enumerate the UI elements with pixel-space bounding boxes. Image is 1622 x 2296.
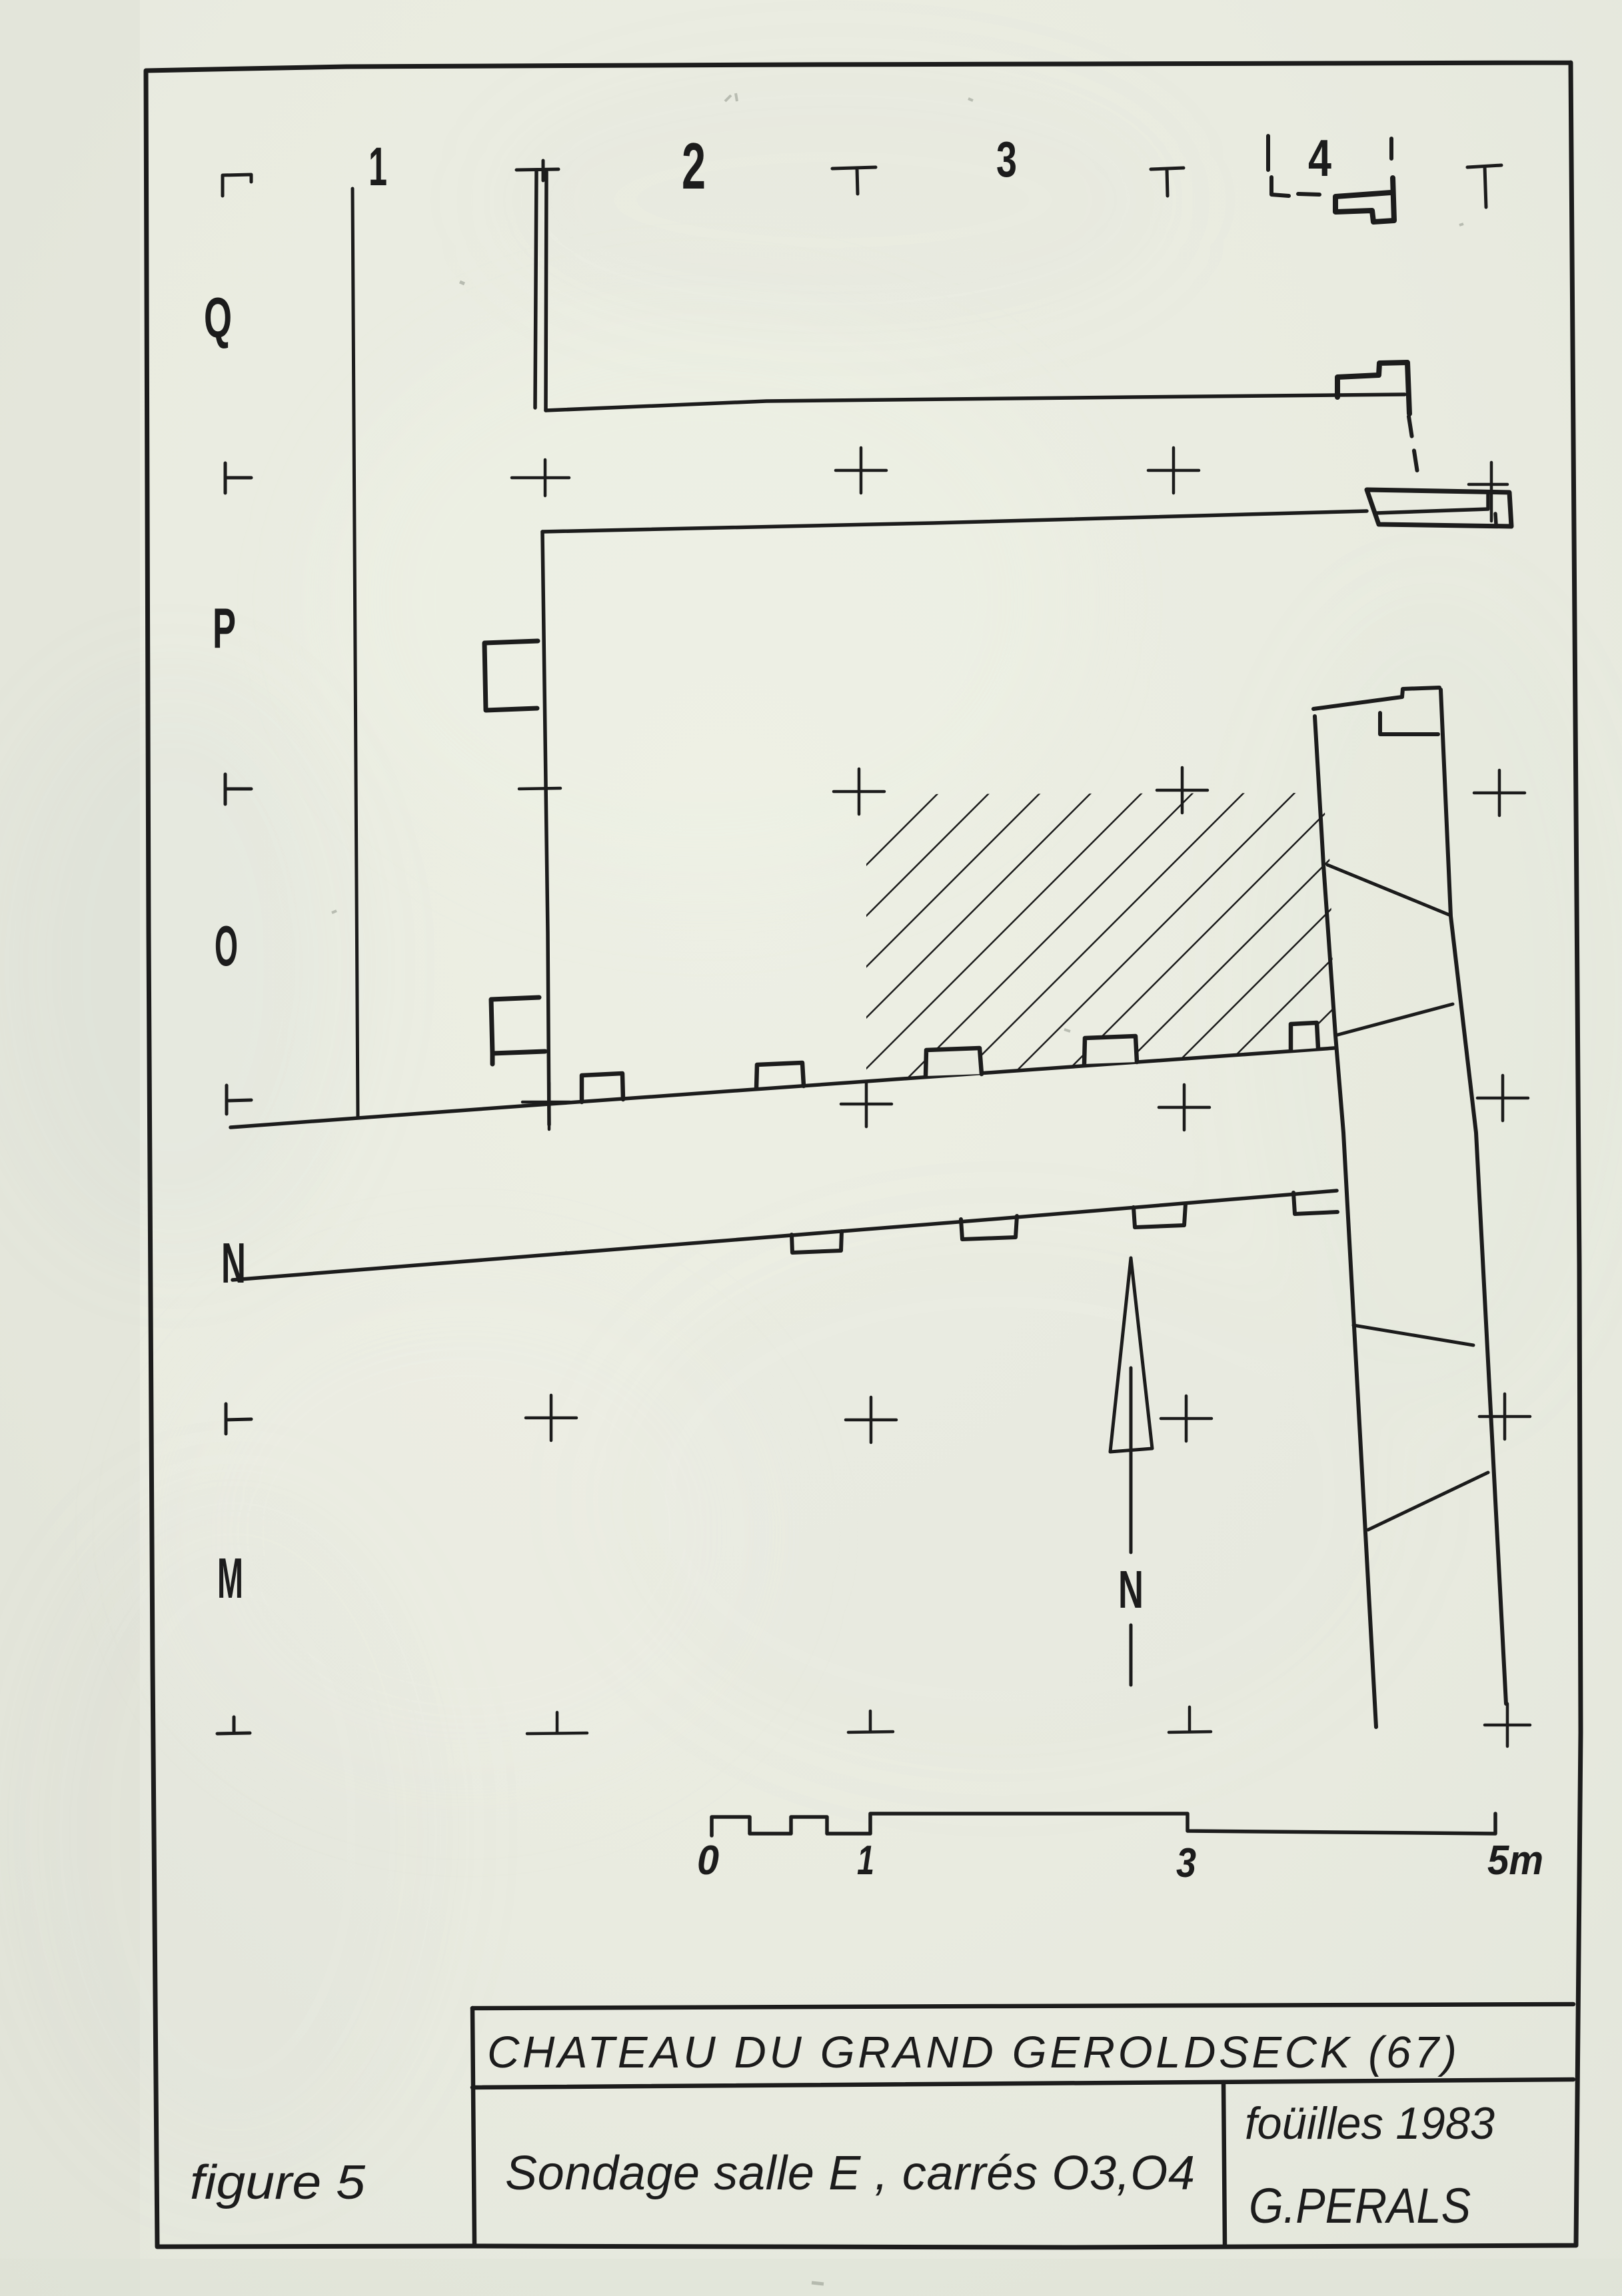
svg-text:Q: Q (204, 287, 232, 350)
svg-text:1: 1 (857, 1838, 874, 1884)
svg-text:foüilles 1983: foüilles 1983 (1245, 2098, 1495, 2149)
svg-text:CHATEAU DU GRAND GEROLDSECK: CHATEAU DU GRAND GEROLDSECK (67) (487, 2027, 1457, 2077)
svg-text:N: N (221, 1232, 246, 1295)
svg-text:2: 2 (682, 129, 706, 203)
svg-text:0: 0 (697, 1838, 719, 1884)
svg-text:P: P (213, 597, 236, 660)
svg-text:O: O (215, 915, 238, 978)
svg-text:5m: 5m (1487, 1838, 1543, 1884)
svg-text:M: M (217, 1547, 243, 1610)
svg-text:N: N (1118, 1560, 1144, 1619)
svg-text:Sondage salle E , carrés O3,: Sondage salle E , carrés O3,O4 (505, 2147, 1195, 2200)
svg-text:1: 1 (369, 137, 387, 197)
svg-text:figure 5: figure 5 (190, 2156, 366, 2209)
svg-text:3: 3 (1176, 1840, 1196, 1886)
svg-text:G.PERALS: G.PERALS (1249, 2178, 1471, 2233)
svg-text:3: 3 (996, 131, 1017, 187)
svg-text:4: 4 (1308, 129, 1331, 187)
